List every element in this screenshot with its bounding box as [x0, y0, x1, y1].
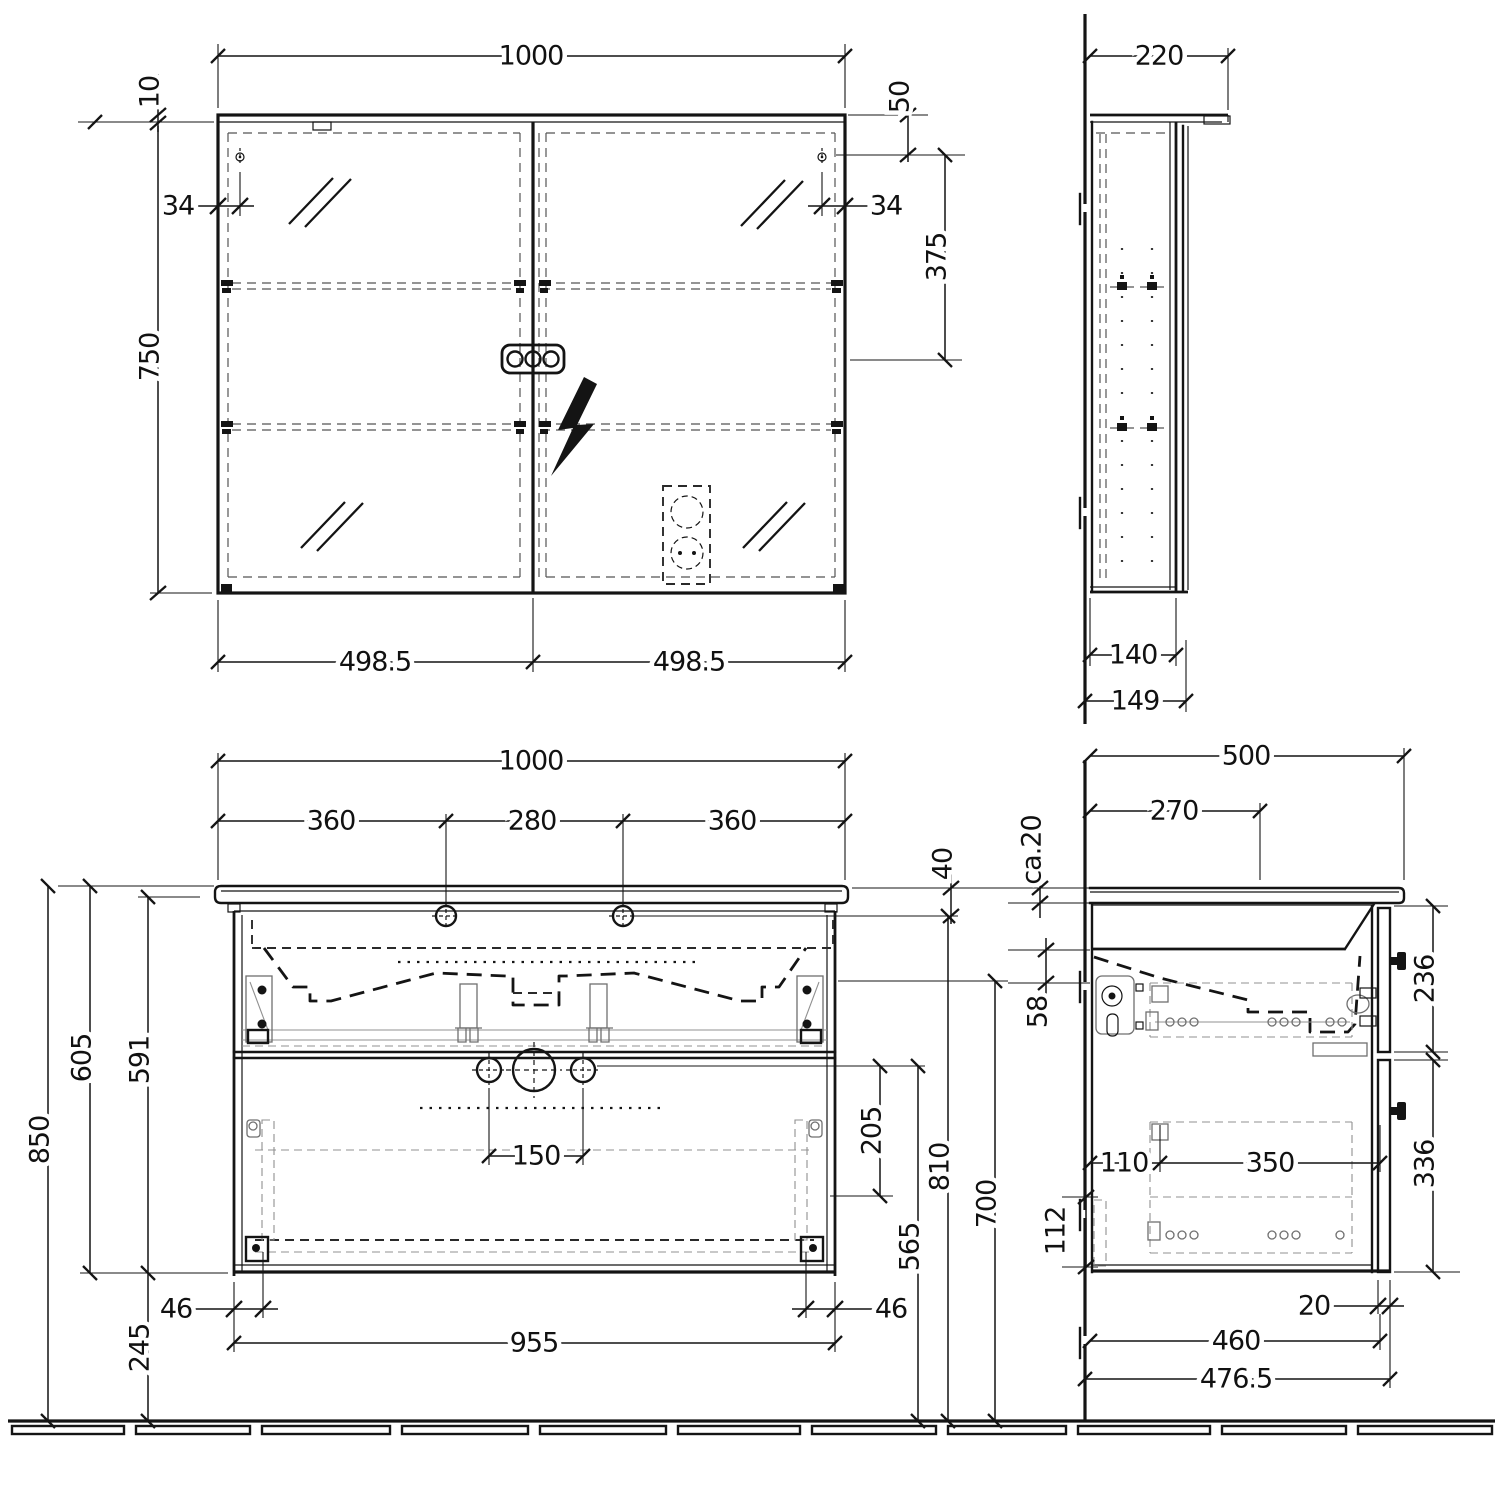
power-outlet-icon: [663, 486, 710, 584]
shelf-pin-icon: [1117, 275, 1157, 431]
dim-label: 810: [925, 1143, 956, 1192]
dim-label: 476.5: [1200, 1364, 1272, 1395]
dim-door-widths: 498.5 498.5: [218, 598, 845, 678]
dim-label: 360: [708, 806, 757, 837]
lower-slide-hidden: [1094, 1122, 1352, 1266]
corner-block: [833, 584, 844, 592]
dim-label: 270: [1150, 796, 1199, 827]
dim-label: ca.20: [1017, 815, 1048, 884]
dim-label: 34: [162, 191, 194, 222]
dim-label: 10: [135, 76, 166, 108]
dim-top-to-hinge: 50: [836, 81, 965, 162]
drawer-knob-icon: [1390, 952, 1406, 1120]
dim-label: 34: [870, 191, 902, 222]
basin-support: [590, 984, 607, 1028]
dim-label: 150: [512, 1141, 561, 1172]
dim-side-top-thickness: ca.20: [1008, 815, 1090, 918]
dim-hinge-to-center: 375: [850, 155, 962, 360]
dim-label: 245: [125, 1324, 156, 1373]
dim-label: 336: [1410, 1140, 1441, 1189]
dim-carcass-width: 955: [234, 1328, 835, 1359]
dim-slide-back-and-length: 110 350: [1090, 1125, 1380, 1179]
dim-drain-spacing: 150: [489, 1088, 583, 1172]
drawer-slide-right: [797, 976, 823, 1043]
dim-front-overhang: 20: [1298, 1280, 1404, 1322]
dim-label: 565: [895, 1223, 926, 1272]
dim-divider-height: 565: [895, 1066, 926, 1421]
dim-mirror-body-depth: 140: [1090, 598, 1176, 671]
dim-slide-bottom: 112: [1041, 1190, 1099, 1274]
mirror-cabinet-side-view: 220 140 149: [1080, 14, 1230, 724]
dim-label: 500: [1222, 741, 1271, 772]
vanity-side-view: 500 270 ca.20 58 236: [1008, 741, 1460, 1422]
dim-hinge-left: 34: [162, 172, 254, 222]
dim-label: 40: [928, 848, 959, 880]
mirror-cabinet-front-view: 1000 10 750 34 34: [78, 41, 965, 678]
dim-label: 50: [885, 81, 916, 113]
dim-drain-height: 700: [972, 981, 1003, 1421]
floor-line: [8, 1421, 1495, 1434]
dim-mirror-depth: 220: [1090, 41, 1228, 111]
vanity-front-view: 1000 360 280 360 850 605 591: [25, 746, 1093, 1422]
pilot-hole-icon: [236, 148, 826, 166]
basin-support: [460, 984, 477, 1028]
dim-label: 280: [508, 806, 557, 837]
dim-label: 360: [307, 806, 356, 837]
dim-label: 700: [972, 1180, 1003, 1229]
dim-label: 220: [1135, 41, 1184, 72]
dim-label: 498.5: [339, 647, 411, 678]
dim-label: 236: [1410, 955, 1441, 1004]
dim-label: 850: [25, 1116, 56, 1165]
dim-label: 605: [67, 1034, 98, 1083]
dim-label: 46: [875, 1294, 907, 1325]
dim-label: 955: [510, 1328, 559, 1359]
dim-label: 375: [922, 233, 953, 282]
countertop: [215, 886, 848, 903]
dim-apron: 58: [1008, 938, 1090, 1028]
dim-label: 20: [1298, 1291, 1330, 1322]
corner-block: [221, 584, 232, 592]
dim-label: 112: [1041, 1207, 1072, 1256]
dim-floor-clearance: 245: [125, 1273, 156, 1421]
dim-label: 110: [1100, 1148, 1149, 1179]
dim-underside-height: 810: [925, 916, 956, 1421]
dim-drawer-lower: 336: [1394, 1060, 1460, 1272]
dim-label: 1000: [499, 41, 564, 72]
upper-slide-hidden: [1146, 983, 1376, 1056]
dim-height-total: 850: [25, 886, 215, 1421]
dim-mirror-top-offset: 10: [78, 74, 214, 132]
dim-mirror-width: 1000: [218, 41, 845, 109]
dim-label: 750: [135, 333, 166, 382]
lightning-bolt-icon: [551, 377, 597, 476]
dim-carcass-depth: 460: [1090, 1314, 1380, 1357]
dim-label: 140: [1109, 640, 1158, 671]
technical-drawing-page: 1000 10 750 34 34: [0, 0, 1500, 1500]
dim-label: 591: [125, 1036, 156, 1085]
drain-icon: [472, 1042, 600, 1098]
technical-drawing: 1000 10 750 34 34: [0, 0, 1500, 1500]
dim-drain-offset: 205: [830, 1066, 893, 1196]
dim-height-carcass: 591: [80, 897, 228, 1273]
dim-top-thickness: 40: [852, 848, 1092, 924]
dim-label: 58: [1023, 996, 1054, 1028]
shelf-pin-holes: [1122, 248, 1152, 568]
dim-label: 149: [1111, 686, 1160, 717]
dim-label: 350: [1246, 1148, 1295, 1179]
dim-label: 460: [1212, 1326, 1261, 1357]
mounting-bracket-icon: [1096, 976, 1143, 1036]
dim-label: 1000: [499, 746, 564, 777]
dim-height-cabinet: 605: [67, 886, 98, 1273]
interior-hidden: [1096, 133, 1168, 580]
faucet-hole-icon: [432, 902, 637, 930]
wall-line: [1080, 14, 1085, 724]
drawer-slide-left: [246, 976, 272, 1043]
dim-tap-depth: 270: [1090, 796, 1260, 881]
washbasin-hidden-outline: [252, 920, 833, 1005]
dim-hinge-right: 34: [808, 172, 902, 222]
dim-label: 205: [857, 1107, 888, 1156]
dim-label: 498.5: [653, 647, 725, 678]
dim-label: 46: [160, 1294, 192, 1325]
drawer-fronts: [1378, 908, 1390, 1272]
dim-drawer-upper: 236: [1394, 906, 1448, 1052]
wall-line: [1080, 760, 1085, 1421]
